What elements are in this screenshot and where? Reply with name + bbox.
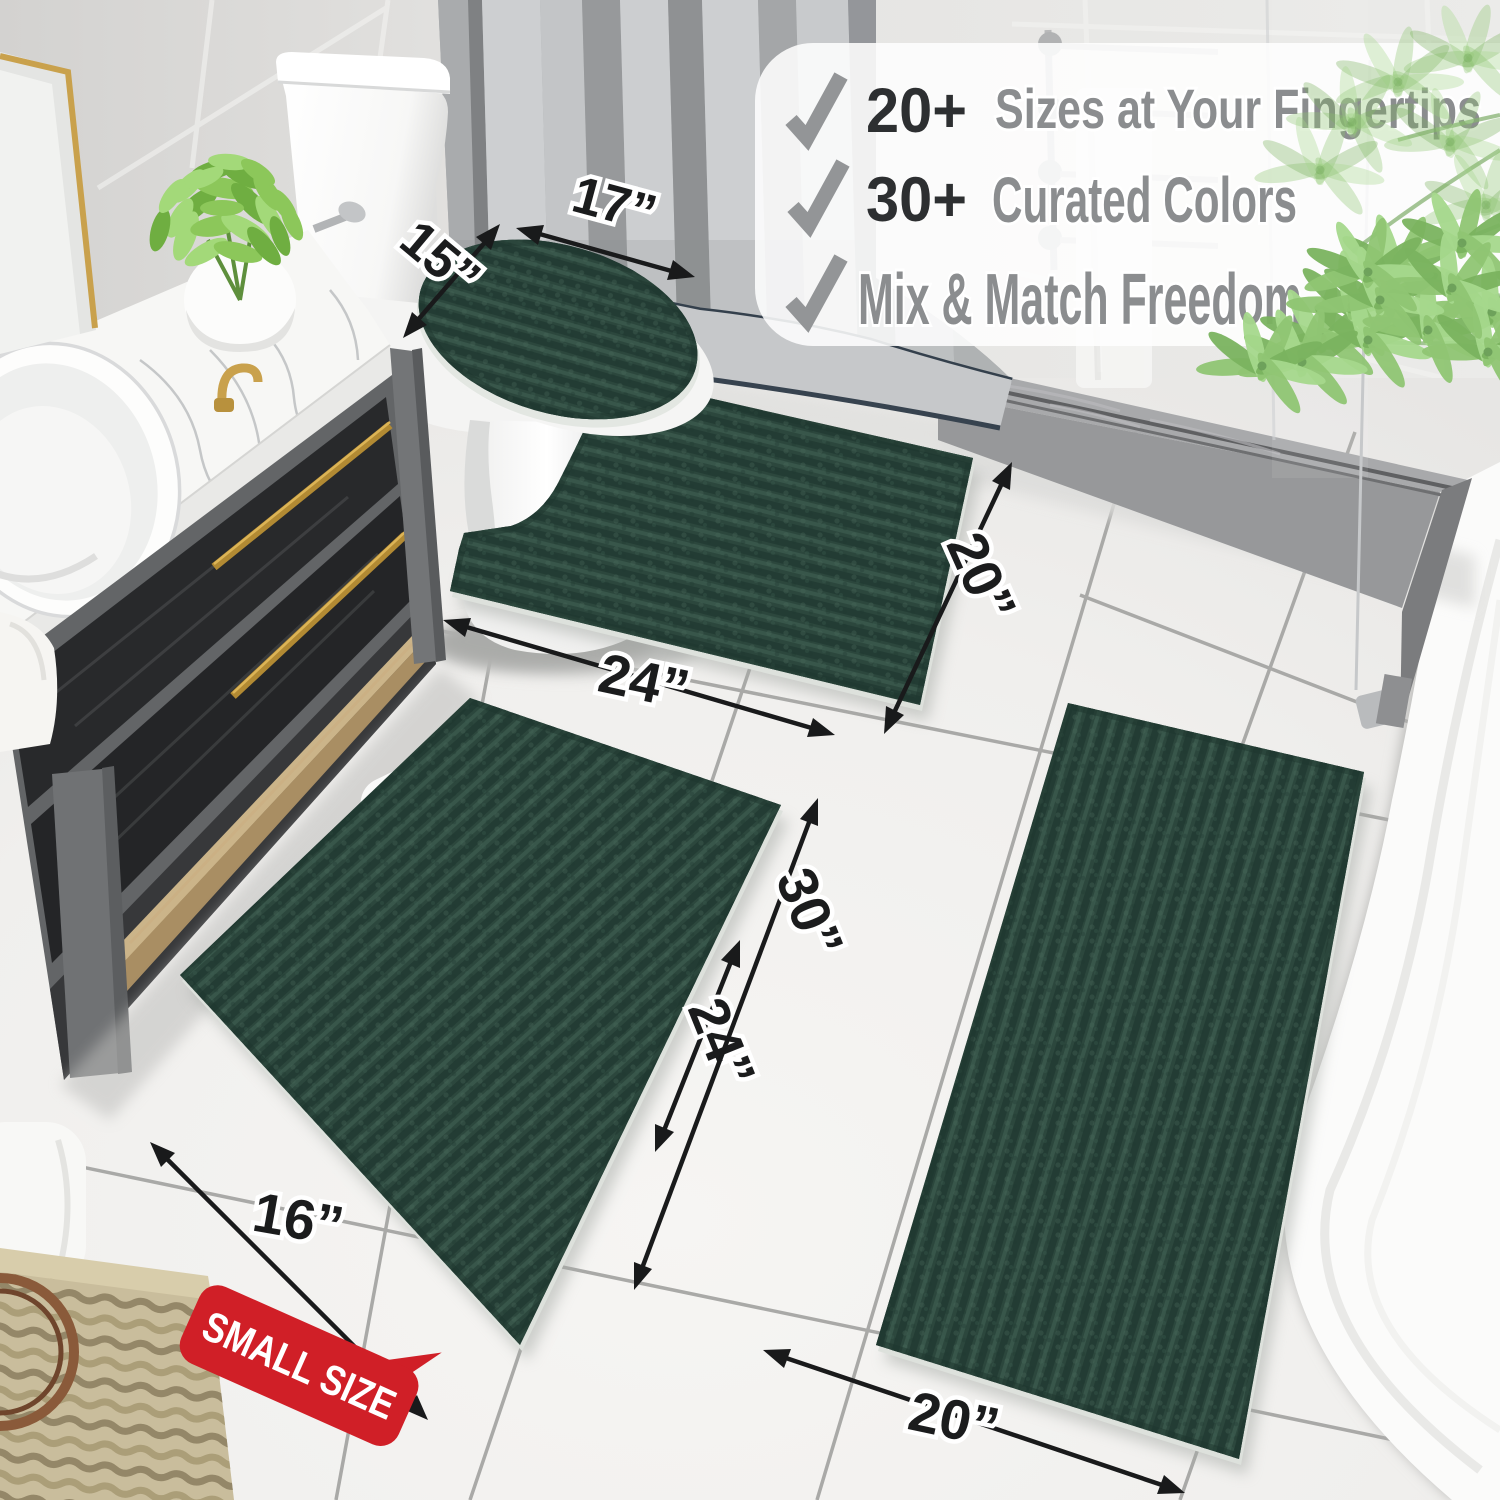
svg-text:30+: 30+ [866, 165, 967, 235]
svg-text:Curated Colors: Curated Colors [992, 164, 1297, 236]
svg-text:Mix & Match Freedom: Mix & Match Freedom [858, 260, 1302, 340]
svg-text:20+: 20+ [866, 76, 967, 146]
